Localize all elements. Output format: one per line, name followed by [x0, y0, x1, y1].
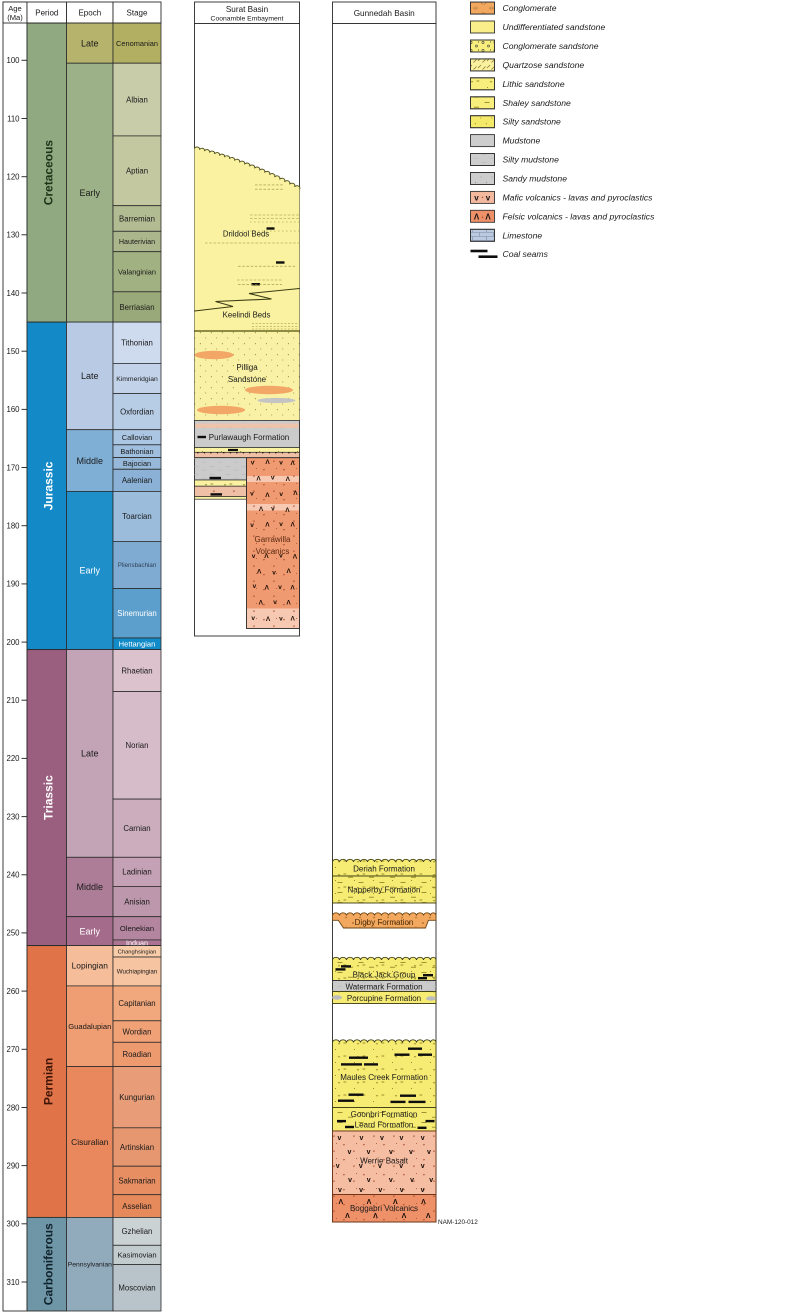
svg-text:Late: Late [81, 38, 99, 48]
svg-text:Λ: Λ [373, 1213, 378, 1220]
svg-text:v: v [427, 1149, 431, 1156]
svg-text:Black Jack Group: Black Jack Group [353, 971, 416, 980]
svg-text:Berriasian: Berriasian [119, 303, 154, 312]
svg-text:Middle: Middle [77, 456, 104, 466]
svg-text:v: v [380, 1135, 384, 1142]
svg-text:v: v [486, 194, 491, 203]
svg-text:v: v [389, 1177, 393, 1184]
svg-text:Λ: Λ [402, 1213, 407, 1220]
svg-text:v: v [271, 475, 275, 482]
svg-text:v: v [360, 1135, 364, 1142]
svg-text:v: v [359, 1187, 363, 1194]
svg-text:Kungurian: Kungurian [119, 1093, 155, 1102]
svg-text:Gunnedah Basin: Gunnedah Basin [354, 9, 415, 18]
svg-text:v: v [279, 491, 283, 498]
svg-text:v: v [367, 1149, 371, 1156]
svg-text:220: 220 [6, 754, 20, 763]
svg-text:v: v [389, 1149, 393, 1156]
svg-text:Carnian: Carnian [123, 824, 150, 833]
svg-text:v: v [409, 1149, 413, 1156]
svg-text:180: 180 [6, 522, 20, 531]
svg-text:Aalenian: Aalenian [122, 476, 152, 485]
svg-text:Λ: Λ [285, 507, 290, 514]
svg-text:Λ: Λ [265, 585, 270, 592]
svg-text:Hettangian: Hettangian [119, 640, 156, 649]
svg-text:Conglomerate sandstone: Conglomerate sandstone [503, 41, 599, 51]
svg-text:Permian: Permian [42, 1058, 56, 1105]
svg-text:Drildool Beds: Drildool Beds [223, 230, 269, 239]
svg-text:140: 140 [6, 289, 20, 298]
svg-text:Pilliga: Pilliga [236, 363, 258, 372]
svg-text:v: v [271, 506, 275, 513]
svg-text:Λ: Λ [474, 213, 480, 222]
svg-text:Λ: Λ [293, 553, 298, 560]
svg-text:170: 170 [6, 463, 20, 472]
svg-text:v: v [367, 1177, 371, 1184]
svg-text:Sandstone: Sandstone [228, 375, 267, 384]
svg-text:v: v [348, 1177, 352, 1184]
svg-text:Mudstone: Mudstone [503, 136, 541, 146]
svg-text:Cisuralian: Cisuralian [71, 1137, 109, 1147]
svg-text:100: 100 [6, 56, 20, 65]
svg-text:Tithonian: Tithonian [121, 339, 153, 348]
svg-text:Roadian: Roadian [122, 1050, 151, 1059]
svg-text:Lithic sandstone: Lithic sandstone [503, 79, 565, 89]
svg-text:Artinskian: Artinskian [120, 1143, 154, 1152]
svg-text:Λ: Λ [345, 1213, 350, 1220]
svg-text:Triassic: Triassic [42, 775, 56, 820]
svg-text:Early: Early [80, 926, 101, 936]
svg-text:Oxfordian: Oxfordian [120, 408, 154, 417]
svg-text:Porcupine Formation: Porcupine Formation [347, 994, 421, 1003]
svg-text:Λ: Λ [291, 615, 296, 622]
svg-text:Boggabri Volcanics: Boggabri Volcanics [350, 1204, 418, 1213]
svg-text:Λ: Λ [290, 584, 295, 591]
svg-text:v: v [251, 459, 255, 466]
svg-text:Epoch: Epoch [78, 9, 101, 18]
svg-text:Coal seams: Coal seams [503, 249, 549, 259]
svg-text:v: v [279, 460, 283, 467]
svg-text:Callovian: Callovian [122, 433, 152, 442]
svg-text:270: 270 [6, 1045, 20, 1054]
svg-text:Λ: Λ [291, 521, 296, 528]
svg-text:(Ma): (Ma) [7, 13, 23, 22]
svg-text:310: 310 [6, 1278, 20, 1287]
svg-text:Λ: Λ [256, 475, 261, 482]
svg-text:Toarcian: Toarcian [122, 512, 151, 521]
svg-text:Pennsylvanian: Pennsylvanian [68, 1262, 112, 1269]
svg-text:v: v [378, 1187, 382, 1194]
svg-text:120: 120 [6, 173, 20, 182]
svg-text:Conglomerate: Conglomerate [503, 3, 557, 13]
svg-text:Sinemurian: Sinemurian [117, 609, 156, 618]
svg-text:Kimmeridgian: Kimmeridgian [116, 376, 158, 383]
svg-text:Capitanian: Capitanian [118, 999, 155, 1008]
svg-text:Quartzose sandstone: Quartzose sandstone [503, 60, 585, 70]
svg-text:Surat Basin: Surat Basin [226, 5, 269, 14]
svg-text:Aptian: Aptian [126, 167, 148, 176]
svg-text:Late: Late [81, 371, 99, 381]
svg-text:Sandy mudstone: Sandy mudstone [503, 174, 568, 184]
svg-text:v: v [279, 521, 283, 528]
svg-text:Λ: Λ [265, 492, 270, 499]
svg-text:Changhsingian: Changhsingian [118, 949, 157, 955]
svg-text:190: 190 [6, 580, 20, 589]
svg-text:v: v [410, 1177, 414, 1184]
svg-text:Maules Creek Formation: Maules Creek Formation [340, 1073, 428, 1082]
svg-text:Olenekian: Olenekian [120, 924, 154, 933]
svg-text:v: v [421, 1135, 425, 1142]
svg-text:Stage: Stage [127, 9, 148, 18]
svg-text:v: v [253, 583, 257, 590]
svg-text:Undifferentiated sandstone: Undifferentiated sandstone [503, 22, 606, 32]
svg-text:Silty mudstone: Silty mudstone [503, 155, 560, 165]
svg-text:Digby Formation: Digby Formation [355, 918, 414, 927]
svg-text:230: 230 [6, 812, 20, 821]
svg-text:260: 260 [6, 987, 20, 996]
svg-text:Wordian: Wordian [123, 1027, 152, 1036]
svg-text:Λ: Λ [265, 459, 270, 466]
svg-text:Goonbri Formation: Goonbri Formation [351, 1110, 418, 1119]
svg-text:v: v [474, 194, 479, 203]
svg-text:Gzhelian: Gzhelian [122, 1227, 153, 1236]
svg-text:Bathonian: Bathonian [120, 447, 153, 456]
svg-text:Deriah Formation: Deriah Formation [353, 865, 415, 874]
svg-text:Λ: Λ [259, 506, 264, 513]
svg-text:Purlawaugh Formation: Purlawaugh Formation [209, 433, 289, 442]
svg-text:v: v [348, 1149, 352, 1156]
svg-text:Coonamble Embayment: Coonamble Embayment [211, 16, 284, 23]
svg-text:Anisian: Anisian [124, 897, 150, 906]
svg-text:v: v [279, 615, 283, 622]
svg-text:Bajocian: Bajocian [123, 459, 151, 468]
svg-text:Λ: Λ [265, 522, 270, 529]
svg-text:Λ: Λ [485, 213, 491, 222]
svg-text:Garrawilla: Garrawilla [254, 535, 291, 544]
svg-text:Asselian: Asselian [122, 1202, 151, 1211]
svg-text:NAM-120-012: NAM-120-012 [438, 1219, 478, 1226]
svg-text:v: v [272, 569, 276, 576]
svg-text:Felsic volcanics - lavas and p: Felsic volcanics - lavas and pyroclastic… [503, 211, 656, 221]
svg-text:Cenomanian: Cenomanian [116, 39, 158, 48]
svg-text:Λ: Λ [291, 460, 296, 467]
svg-text:Moscovian: Moscovian [118, 1284, 155, 1293]
svg-text:160: 160 [6, 405, 20, 414]
svg-text:Pliensbachian: Pliensbachian [118, 562, 157, 569]
svg-text:v: v [278, 584, 282, 591]
svg-text:110: 110 [7, 114, 20, 123]
svg-text:Early: Early [80, 566, 101, 576]
svg-text:Λ: Λ [266, 616, 271, 623]
svg-text:Leard Formation: Leard Formation [355, 1120, 414, 1129]
svg-text:Wuchiapingian: Wuchiapingian [117, 969, 158, 976]
svg-text:Period: Period [35, 9, 58, 18]
svg-text:Λ: Λ [421, 1199, 426, 1206]
svg-text:Ladinian: Ladinian [122, 868, 151, 877]
svg-text:Shaley sandstone: Shaley sandstone [503, 98, 572, 108]
svg-text:Albian: Albian [126, 95, 148, 104]
svg-text:Λ: Λ [257, 569, 262, 576]
svg-text:200: 200 [6, 638, 20, 647]
svg-text:Lopingian: Lopingian [72, 961, 109, 971]
svg-text:v: v [251, 615, 255, 622]
svg-text:Werrie Basalt: Werrie Basalt [360, 1157, 409, 1166]
svg-text:240: 240 [6, 871, 20, 880]
svg-text:280: 280 [6, 1103, 20, 1112]
svg-text:Watermark Formation: Watermark Formation [345, 983, 422, 992]
svg-text:Volcanics: Volcanics [256, 547, 290, 556]
svg-text:v: v [336, 1163, 340, 1170]
svg-text:Λ: Λ [259, 600, 264, 607]
svg-text:v: v [273, 599, 277, 606]
svg-text:Sakmarian: Sakmarian [118, 1176, 155, 1185]
svg-text:Napperby Formation: Napperby Formation [348, 886, 421, 895]
svg-text:v: v [399, 1135, 403, 1142]
svg-text:v: v [400, 1187, 404, 1194]
svg-text:Cretaceous: Cretaceous [42, 140, 56, 206]
svg-text:Carboniferous: Carboniferous [42, 1223, 56, 1305]
svg-text:Valanginian: Valanginian [118, 267, 156, 276]
svg-text:Hauterivian: Hauterivian [119, 237, 155, 246]
svg-text:v: v [421, 1187, 425, 1194]
svg-text:Mafic volcanics - lavas and py: Mafic volcanics - lavas and pyroclastics [503, 192, 654, 202]
svg-text:Early: Early [80, 188, 101, 198]
svg-text:Λ: Λ [286, 476, 291, 483]
svg-text:Λ: Λ [293, 490, 298, 497]
svg-text:150: 150 [6, 347, 20, 356]
svg-text:Barremian: Barremian [119, 214, 155, 223]
svg-text:Λ: Λ [286, 600, 291, 607]
svg-text:Norian: Norian [126, 741, 149, 750]
svg-text:Late: Late [81, 749, 99, 759]
svg-text:v: v [338, 1187, 342, 1194]
svg-text:v: v [421, 1163, 425, 1170]
svg-text:v: v [250, 490, 254, 497]
svg-text:130: 130 [6, 231, 20, 240]
svg-text:Λ: Λ [338, 1199, 343, 1206]
svg-text:Kasimovian: Kasimovian [117, 1251, 156, 1260]
svg-text:v: v [250, 522, 254, 529]
svg-text:250: 250 [6, 929, 20, 938]
svg-text:Limestone: Limestone [503, 230, 543, 240]
svg-text:v: v [337, 1135, 341, 1142]
svg-text:Silty sandstone: Silty sandstone [503, 117, 562, 127]
svg-text:Middle: Middle [77, 882, 104, 892]
svg-text:210: 210 [6, 696, 20, 705]
svg-text:290: 290 [6, 1161, 20, 1170]
svg-text:300: 300 [6, 1220, 20, 1229]
svg-text:Guadalupian: Guadalupian [68, 1022, 111, 1031]
svg-text:v: v [429, 1177, 433, 1184]
svg-text:Keelindi Beds: Keelindi Beds [223, 311, 271, 320]
svg-text:Rhaetian: Rhaetian [121, 666, 152, 675]
svg-text:Jurassic: Jurassic [42, 461, 56, 510]
svg-text:Λ: Λ [426, 1213, 431, 1220]
svg-text:Age: Age [8, 4, 22, 13]
svg-text:Λ: Λ [287, 568, 292, 575]
